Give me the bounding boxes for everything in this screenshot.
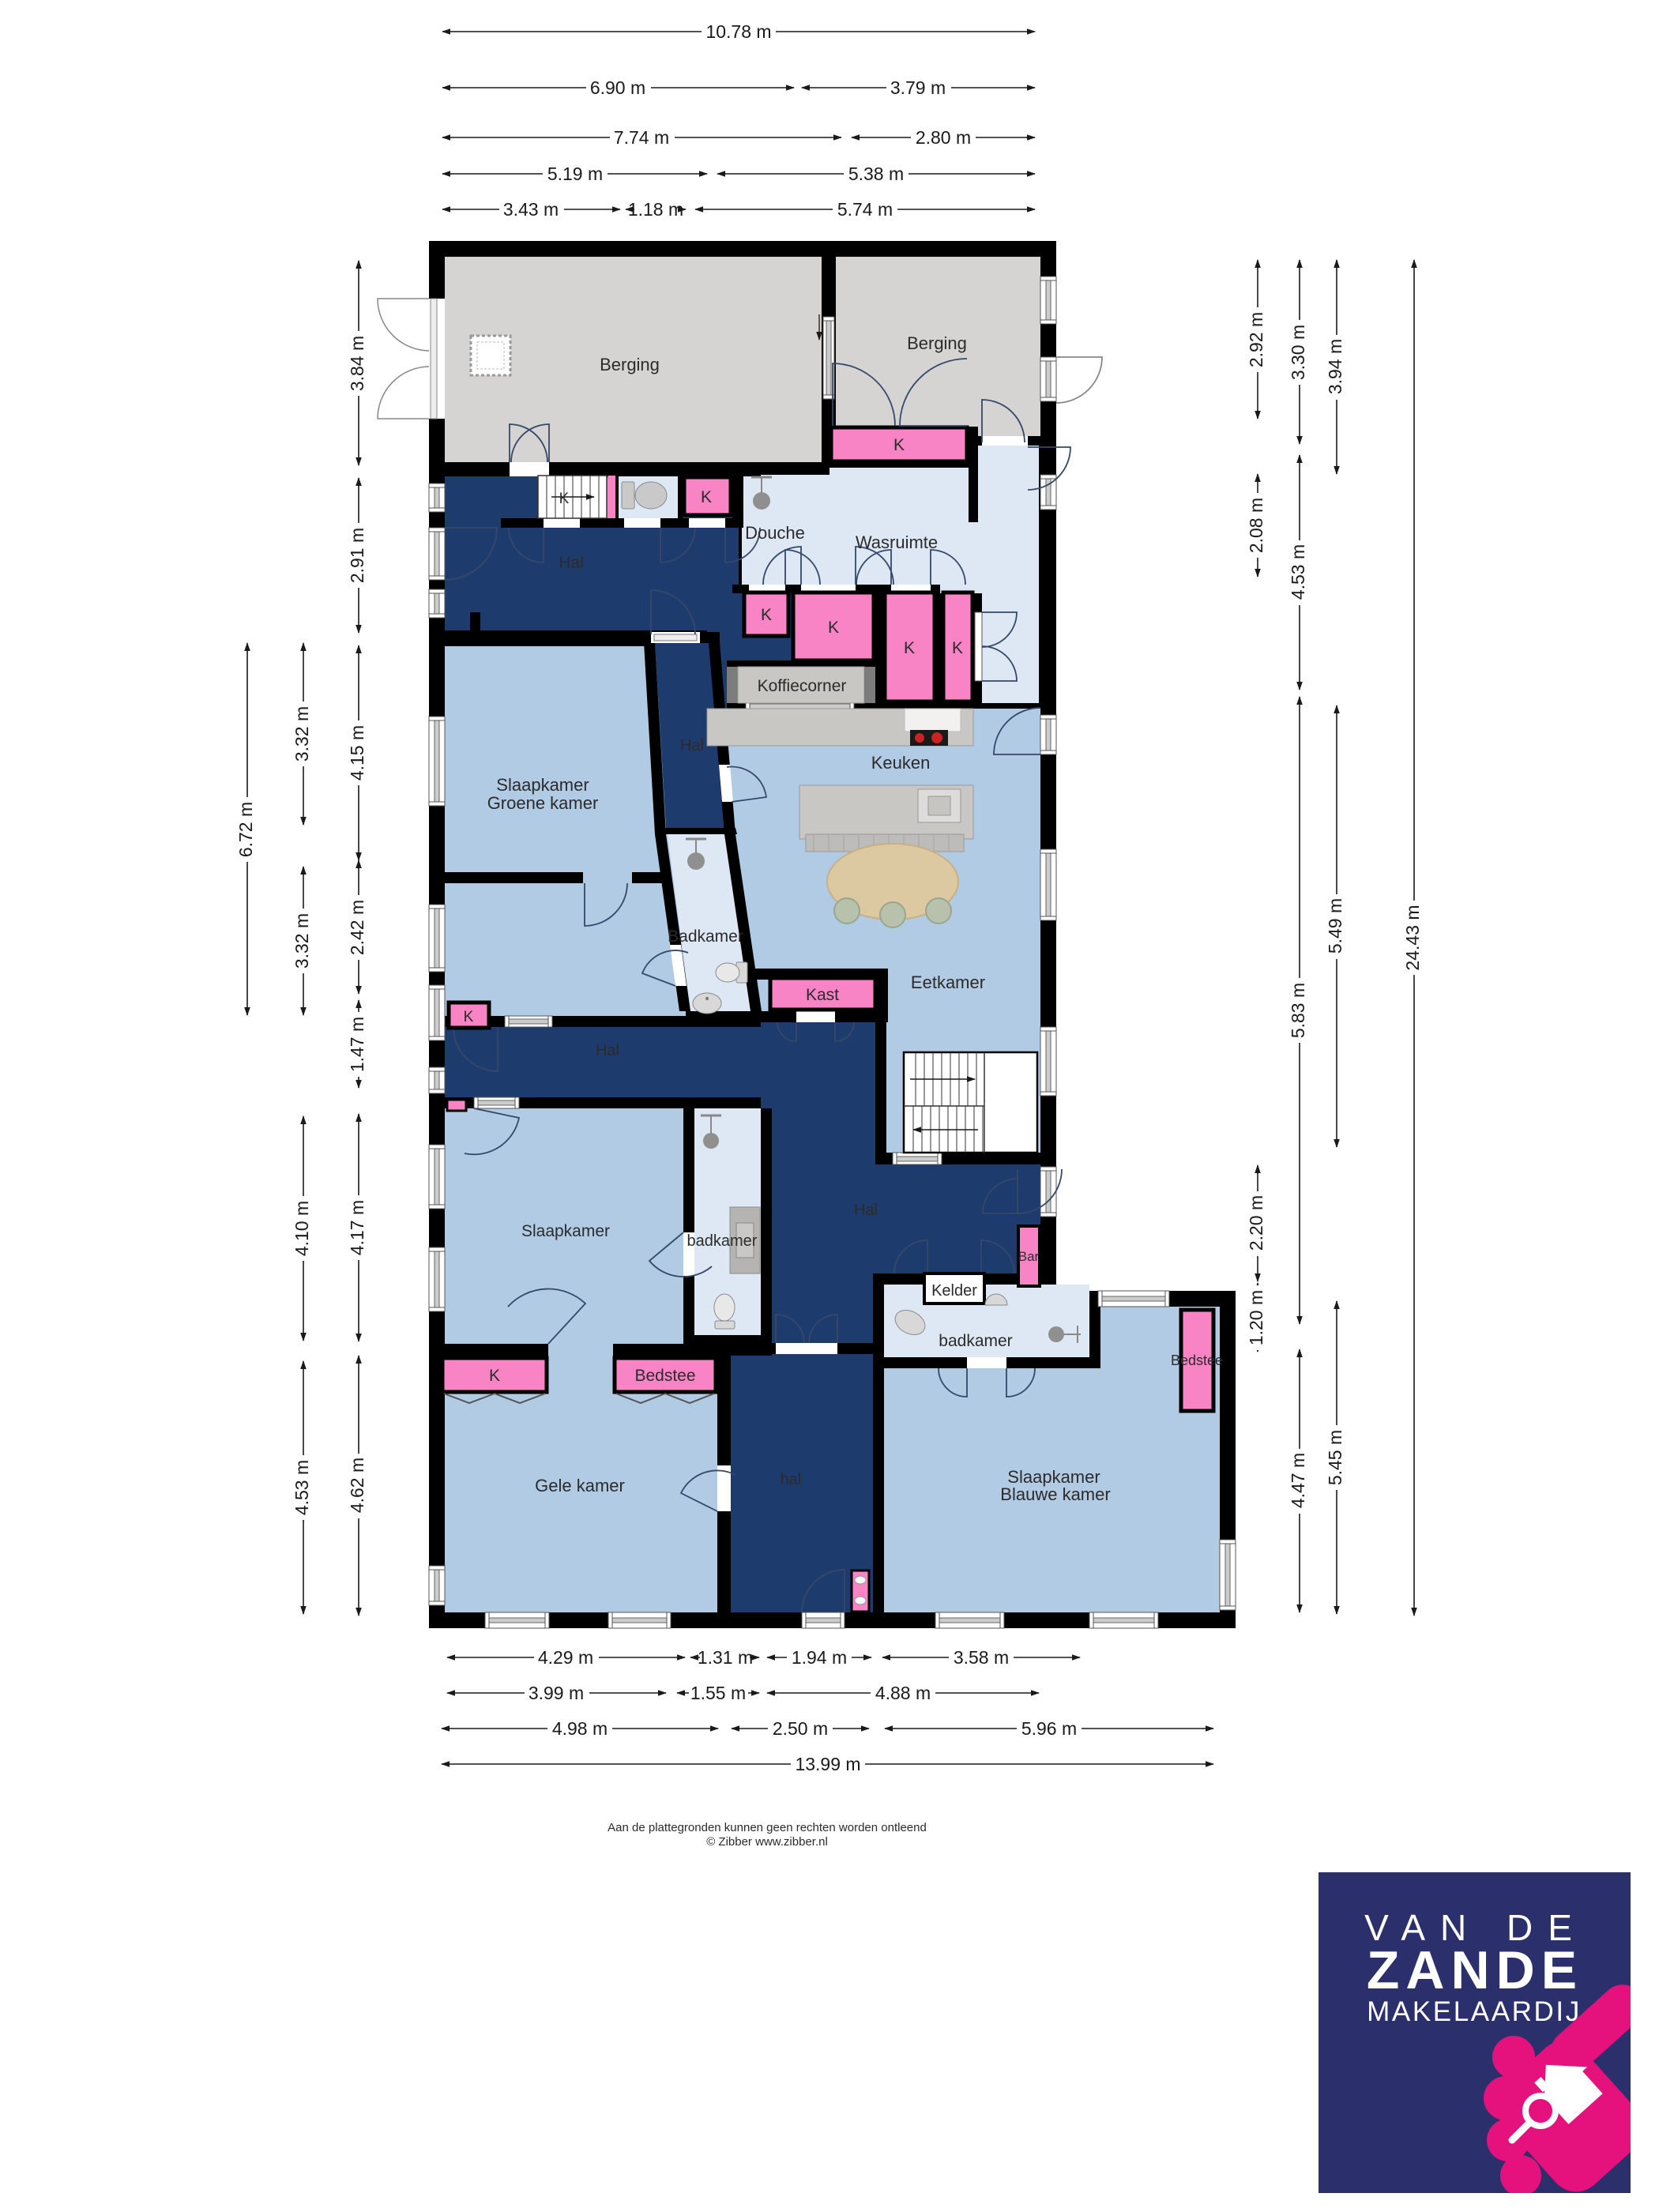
- svg-text:5.19 m: 5.19 m: [547, 164, 603, 184]
- svg-text:Bedstee: Bedstee: [1171, 1352, 1223, 1368]
- svg-text:7.74 m: 7.74 m: [614, 127, 669, 148]
- svg-text:4.15 m: 4.15 m: [347, 725, 367, 781]
- svg-text:Slaapkamer: Slaapkamer: [496, 775, 589, 795]
- svg-text:K: K: [559, 491, 570, 507]
- svg-text:3.58 m: 3.58 m: [954, 1647, 1009, 1668]
- svg-text:Berging: Berging: [600, 355, 660, 374]
- svg-text:K: K: [893, 436, 905, 454]
- svg-text:5.96 m: 5.96 m: [1021, 1718, 1077, 1739]
- svg-text:Gele kamer: Gele kamer: [535, 1476, 625, 1495]
- svg-text:Wasruimte: Wasruimte: [856, 532, 938, 552]
- svg-text:4.17 m: 4.17 m: [347, 1200, 367, 1255]
- svg-text:Hal: Hal: [854, 1202, 878, 1219]
- svg-text:2.20 m: 2.20 m: [1246, 1195, 1266, 1251]
- svg-text:10.78 m: 10.78 m: [705, 21, 771, 42]
- svg-text:5.45 m: 5.45 m: [1325, 1430, 1345, 1485]
- svg-text:Kelder: Kelder: [931, 1282, 977, 1300]
- svg-text:Bar: Bar: [1018, 1249, 1040, 1264]
- svg-text:1.31 m: 1.31 m: [698, 1647, 753, 1668]
- svg-text:Badkamer: Badkamer: [668, 927, 743, 946]
- svg-text:Douche: Douche: [745, 523, 805, 543]
- svg-text:2.80 m: 2.80 m: [916, 127, 971, 148]
- svg-text:Keuken: Keuken: [871, 753, 931, 773]
- svg-text:3.43 m: 3.43 m: [503, 199, 559, 220]
- svg-text:5.38 m: 5.38 m: [848, 164, 904, 184]
- svg-text:Groene kamer: Groene kamer: [487, 793, 599, 813]
- svg-text:3.79 m: 3.79 m: [890, 77, 946, 98]
- svg-text:2.42 m: 2.42 m: [347, 900, 367, 955]
- svg-text:5.74 m: 5.74 m: [837, 199, 893, 220]
- svg-text:5.83 m: 5.83 m: [1288, 983, 1308, 1038]
- svg-text:K: K: [701, 488, 712, 506]
- svg-text:4.98 m: 4.98 m: [552, 1718, 608, 1739]
- svg-text:Slaapkamer: Slaapkamer: [521, 1222, 610, 1240]
- svg-text:Aan de plattegronden kunnen ge: Aan de plattegronden kunnen geen rechten…: [608, 1821, 927, 1834]
- svg-text:ZANDE: ZANDE: [1367, 1940, 1583, 2000]
- svg-text:4.29 m: 4.29 m: [538, 1647, 593, 1668]
- svg-text:badkamer: badkamer: [687, 1232, 758, 1250]
- svg-text:Berging: Berging: [907, 333, 967, 353]
- svg-text:K: K: [761, 606, 772, 624]
- svg-text:24.43 m: 24.43 m: [1402, 905, 1423, 970]
- svg-text:Hal: Hal: [680, 737, 704, 754]
- svg-text:6.90 m: 6.90 m: [590, 77, 645, 98]
- svg-text:2.08 m: 2.08 m: [1246, 498, 1266, 553]
- svg-text:3.94 m: 3.94 m: [1325, 339, 1345, 394]
- svg-text:badkamer: badkamer: [939, 1332, 1012, 1350]
- svg-text:© Zibber www.zibber.nl: © Zibber www.zibber.nl: [706, 1835, 828, 1849]
- svg-text:5.49 m: 5.49 m: [1325, 898, 1345, 954]
- svg-text:4.53 m: 4.53 m: [292, 1460, 312, 1515]
- svg-text:4.10 m: 4.10 m: [292, 1201, 312, 1256]
- svg-text:2.91 m: 2.91 m: [347, 528, 367, 583]
- svg-text:2.92 m: 2.92 m: [1246, 312, 1266, 367]
- svg-text:1.20 m: 1.20 m: [1246, 1290, 1266, 1345]
- svg-text:1.18 m: 1.18 m: [628, 199, 683, 220]
- svg-text:MAKELAARDIJ: MAKELAARDIJ: [1367, 1996, 1582, 2027]
- svg-text:4.88 m: 4.88 m: [875, 1683, 931, 1703]
- svg-text:4.47 m: 4.47 m: [1288, 1453, 1308, 1508]
- svg-text:4.53 m: 4.53 m: [1288, 544, 1308, 600]
- svg-text:3.32 m: 3.32 m: [292, 913, 312, 969]
- svg-text:1.55 m: 1.55 m: [690, 1683, 746, 1703]
- svg-text:Hal: Hal: [596, 1042, 619, 1059]
- svg-text:K: K: [828, 619, 839, 637]
- svg-text:1.94 m: 1.94 m: [792, 1647, 847, 1668]
- svg-text:Eetkamer: Eetkamer: [911, 972, 985, 992]
- svg-text:3.84 m: 3.84 m: [347, 336, 367, 391]
- svg-text:Koffiecorner: Koffiecorner: [758, 677, 847, 695]
- svg-text:3.32 m: 3.32 m: [292, 706, 312, 762]
- svg-text:1.47 m: 1.47 m: [347, 1017, 367, 1072]
- svg-text:Kast: Kast: [806, 986, 839, 1004]
- svg-text:Bedstee: Bedstee: [634, 1367, 695, 1385]
- svg-text:K: K: [489, 1367, 500, 1385]
- svg-text:K: K: [904, 639, 915, 657]
- svg-text:Hal: Hal: [559, 554, 584, 572]
- svg-text:K: K: [464, 1009, 474, 1025]
- svg-text:4.62 m: 4.62 m: [347, 1458, 367, 1513]
- svg-text:3.99 m: 3.99 m: [529, 1683, 584, 1703]
- svg-text:hal: hal: [781, 1471, 802, 1488]
- svg-text:6.72 m: 6.72 m: [235, 802, 256, 857]
- svg-text:K: K: [952, 639, 963, 657]
- svg-text:Blauwe kamer: Blauwe kamer: [1000, 1484, 1110, 1504]
- svg-text:2.50 m: 2.50 m: [773, 1718, 828, 1739]
- svg-text:13.99 m: 13.99 m: [795, 1754, 860, 1774]
- svg-text:3.30 m: 3.30 m: [1288, 325, 1308, 380]
